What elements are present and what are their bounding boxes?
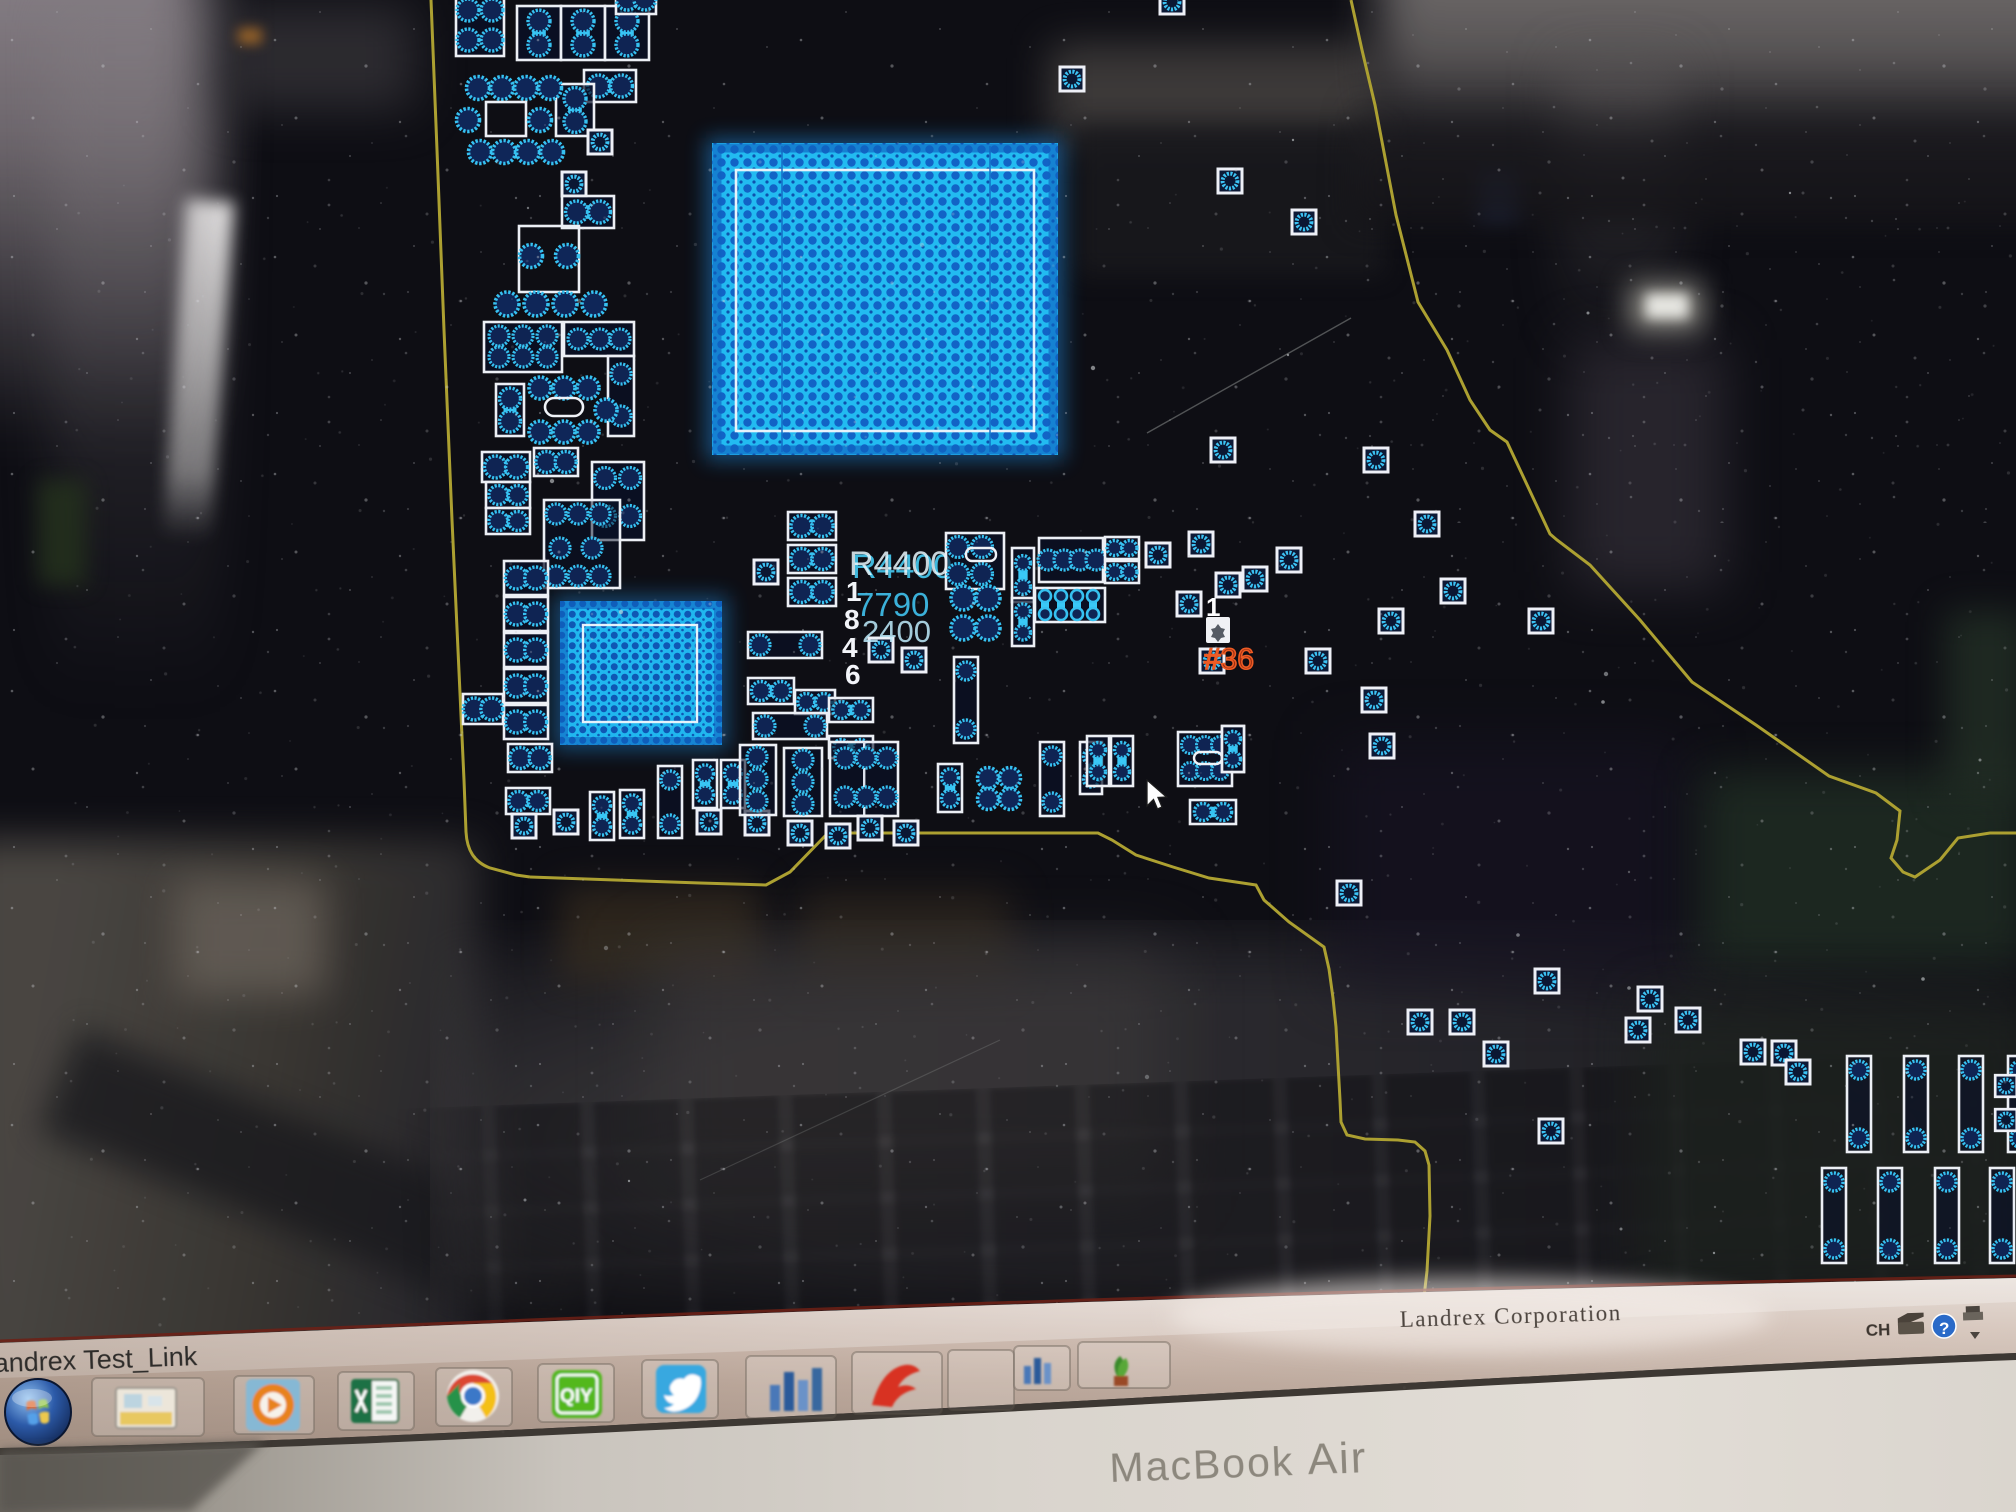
svg-text:QIY: QIY xyxy=(560,1386,593,1407)
svg-text:CH: CH xyxy=(1865,1320,1890,1340)
svg-text:?: ? xyxy=(1939,1319,1949,1338)
